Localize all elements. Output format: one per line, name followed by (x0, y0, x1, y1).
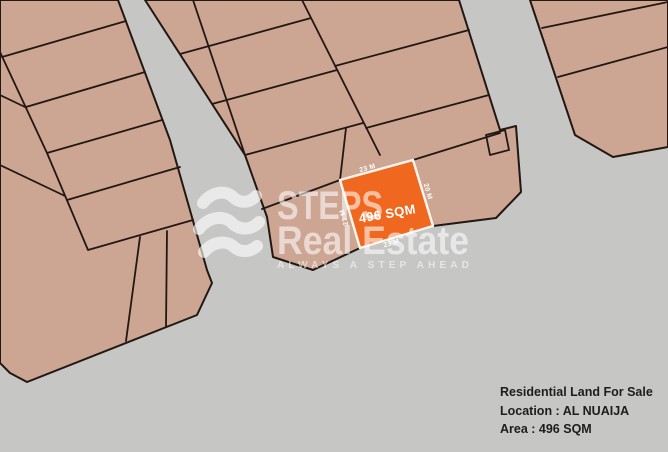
watermark-brand-bottom: Real Estate (277, 219, 469, 263)
listing-info-panel: Residential Land For Sale Location : AL … (500, 383, 665, 439)
watermark-tagline: ALWAYS A STEP AHEAD (277, 260, 473, 271)
listing-area: Area : 496 SQM (500, 420, 665, 439)
listing-title: Residential Land For Sale (500, 383, 665, 402)
listing-location: Location : AL NUAIJA (500, 402, 665, 421)
land-plot-listing-image: 23 M 20 M 23 M 21 M 496 SQM STEPS Real E… (0, 0, 668, 452)
